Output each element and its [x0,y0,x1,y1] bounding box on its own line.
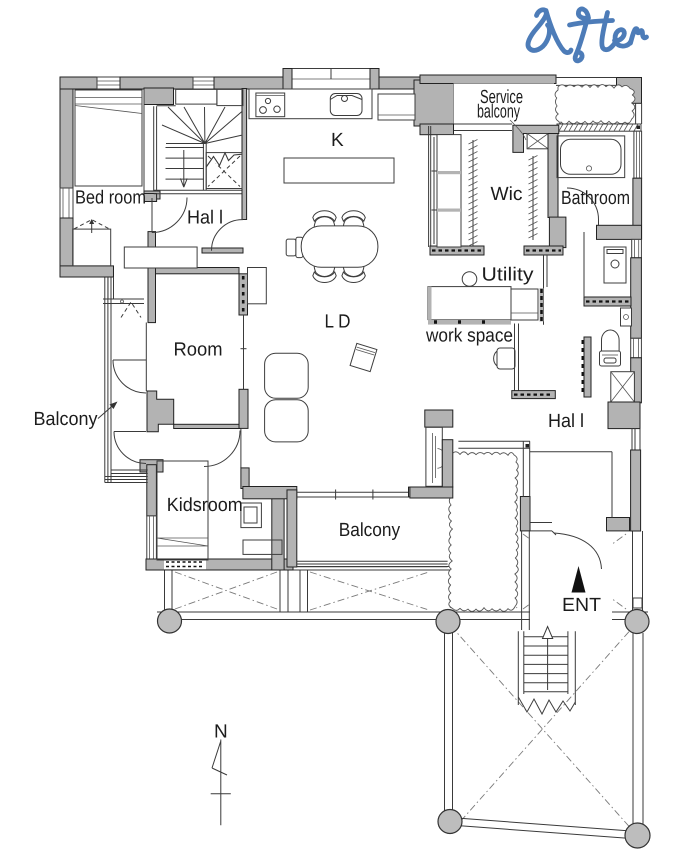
svg-text:Kidsroom: Kidsroom [167,495,243,516]
svg-text:Utility: Utility [482,265,535,286]
svg-text:Wic: Wic [491,184,523,205]
svg-text:K: K [331,130,344,151]
svg-text:work space: work space [425,326,513,347]
svg-text:Bathroom: Bathroom [561,188,630,209]
svg-text:Bed room: Bed room [75,187,146,208]
svg-text:balcony: balcony [477,102,520,123]
svg-text:Balcony: Balcony [34,409,98,430]
svg-text:N: N [214,722,228,743]
svg-text:Room: Room [174,340,223,361]
svg-text:Hal l: Hal l [187,208,223,229]
svg-text:ENT: ENT [562,595,601,616]
svg-text:L D: L D [325,312,351,333]
svg-text:Hal l: Hal l [548,411,584,432]
svg-text:Balcony: Balcony [339,520,401,541]
